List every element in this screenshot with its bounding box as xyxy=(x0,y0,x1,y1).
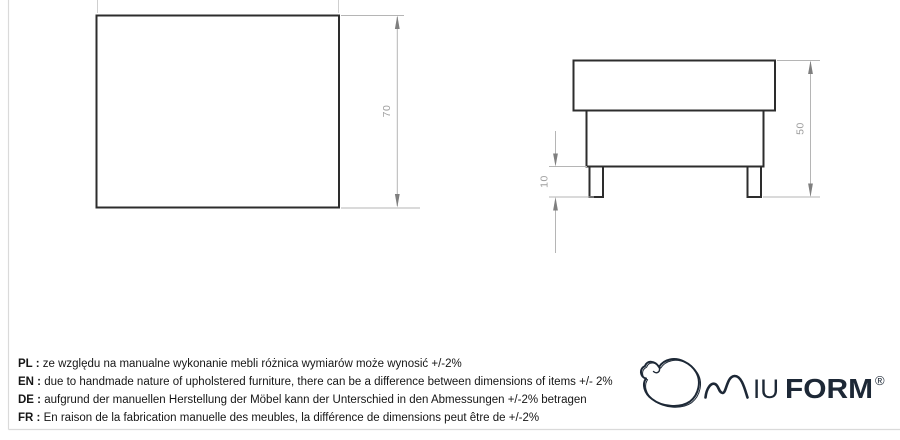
top-view: 70 xyxy=(97,0,421,208)
bean-logo-icon xyxy=(641,359,701,407)
separator: : xyxy=(34,394,44,406)
arrow-down-icon xyxy=(553,154,558,167)
arrow-down-icon xyxy=(808,184,813,198)
side-view: 50 10 xyxy=(539,61,821,254)
logo-letters-iu: IU xyxy=(753,374,779,404)
cushion-outline xyxy=(574,61,776,111)
leg-left xyxy=(590,167,604,198)
furniture-spec-sheet: 70 50 10 xyxy=(0,0,900,440)
disclaimer-text: due to handmade nature of upholstered fu… xyxy=(44,376,612,388)
leg-right xyxy=(748,167,762,198)
base-outline xyxy=(587,111,764,167)
letter-m-squiggle xyxy=(706,376,748,398)
disclaimer-line-en: EN : due to handmade nature of upholster… xyxy=(18,373,613,391)
miuform-logo: IU FORM ® xyxy=(636,346,896,420)
disclaimer-block: PL : ze względu na manualne wykonanie me… xyxy=(18,355,613,427)
arrow-down-icon xyxy=(395,194,400,208)
separator: : xyxy=(34,376,44,388)
arrow-up-icon xyxy=(395,16,400,30)
disclaimer-text: ze względu na manualne wykonanie mebli r… xyxy=(43,358,462,370)
top-view-outline xyxy=(97,16,340,208)
language-code: DE xyxy=(18,394,34,406)
separator: : xyxy=(33,358,43,370)
language-code: EN xyxy=(18,376,34,388)
logo-letters-form: FORM xyxy=(785,373,873,404)
language-code: PL xyxy=(18,358,33,370)
disclaimer-line-pl: PL : ze względu na manualne wykonanie me… xyxy=(18,355,613,373)
disclaimer-line-fr: FR : En raison de la fabrication manuell… xyxy=(18,409,613,427)
disclaimer-line-de: DE : aufgrund der manuellen Herstellung … xyxy=(18,391,613,409)
arrow-up-icon xyxy=(808,61,813,75)
registered-trademark-icon: ® xyxy=(875,373,885,388)
technical-drawing: 70 50 10 xyxy=(0,0,900,340)
arrow-up-icon xyxy=(553,197,558,211)
disclaimer-text: En raison de la fabrication manuelle des… xyxy=(44,412,540,424)
separator: : xyxy=(33,412,43,424)
dimension-label-70: 70 xyxy=(381,105,393,118)
language-code: FR xyxy=(18,412,33,424)
dimension-label-10: 10 xyxy=(539,175,551,188)
dimension-label-50: 50 xyxy=(795,122,807,135)
disclaimer-text: aufgrund der manuellen Herstellung der M… xyxy=(44,394,586,406)
